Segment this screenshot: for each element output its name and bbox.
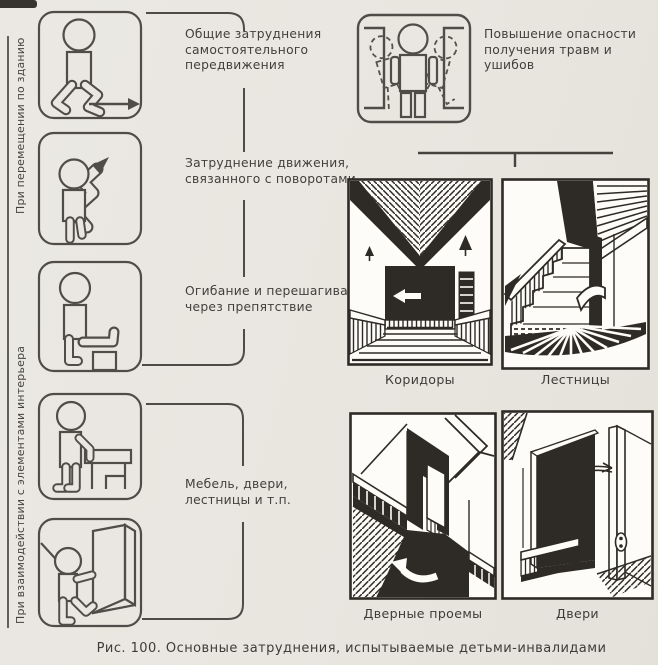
doors-illustration — [501, 410, 654, 600]
branch-tee-connector — [418, 153, 613, 167]
frame-reveal — [407, 432, 419, 522]
label-doorways: Дверные проемы — [349, 606, 497, 621]
pushing-door-pictogram — [35, 515, 145, 630]
open-door-panel — [427, 464, 445, 528]
scan-artifact-bar — [0, 0, 37, 8]
leaning-on-furniture-pictogram — [35, 390, 145, 503]
scan-edge-line — [7, 36, 9, 628]
label-injury-hazard: Повышение опасности получения травм и уш… — [484, 27, 658, 74]
label-doors: Двери — [501, 606, 654, 621]
axis-label-moving-through-building: При перемещении по зданию — [14, 37, 27, 214]
newel-post — [590, 234, 602, 332]
turning-figure-pictogram — [35, 129, 145, 248]
axis-label-interacting-with-interior: При взаимодействии с элементами интерьер… — [14, 346, 27, 624]
doorways-illustration — [349, 412, 497, 600]
central-figure — [391, 25, 437, 118]
obstacle-box — [93, 352, 116, 370]
door-panel — [93, 525, 125, 613]
scanned-book-page: При перемещении по зданию При взаимодейс… — [0, 0, 658, 665]
door-jamb-inner — [609, 426, 617, 580]
corridors-illustration — [347, 178, 493, 366]
walking-figure-pictogram — [35, 8, 145, 122]
figure-bumping-walls-pictogram — [355, 12, 473, 125]
stepping-over-obstacle-pictogram — [35, 258, 145, 375]
door-jamb-outer — [617, 426, 625, 580]
figure-caption: Рис. 100. Основные затруднения, испытыва… — [45, 641, 658, 656]
stairs-illustration — [501, 178, 650, 370]
label-stairs: Лестницы — [501, 372, 650, 387]
keyhole-plate — [616, 533, 627, 551]
right-wall — [444, 28, 464, 108]
label-corridors: Коридоры — [347, 372, 493, 387]
